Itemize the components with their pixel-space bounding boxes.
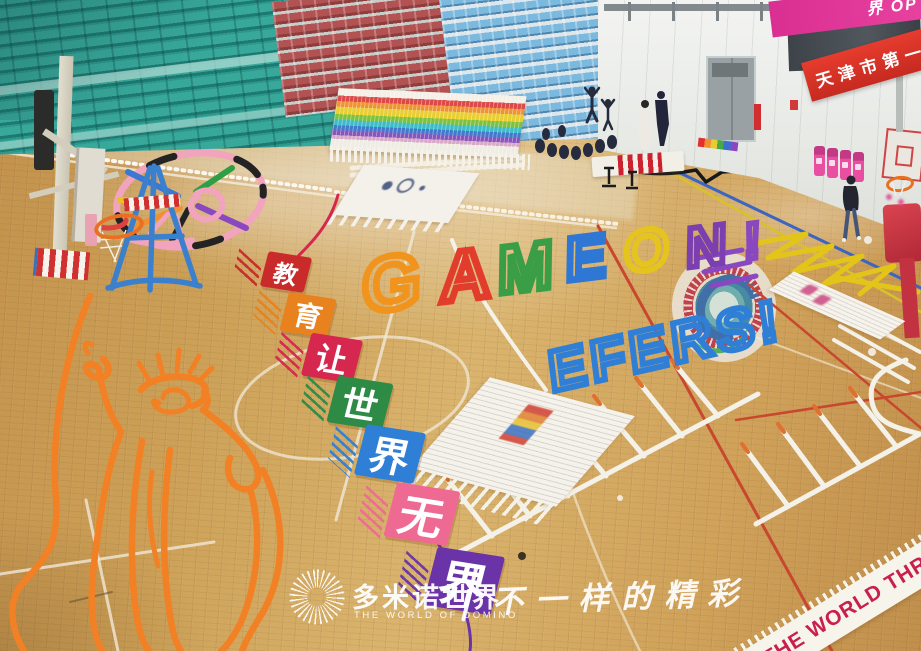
black-stands	[602, 168, 638, 188]
jumping-person	[585, 87, 599, 123]
standing-person-white-dress	[638, 100, 651, 150]
right-hoop-net	[892, 180, 906, 196]
spectators	[0, 0, 921, 651]
cheering-person	[602, 99, 614, 130]
gym-photo: 界 OP 天津市第一 GAMEON! EFERS! 教育让世界无界 OPENIN…	[0, 0, 921, 651]
standing-person	[655, 91, 669, 146]
walking-person	[842, 176, 861, 243]
